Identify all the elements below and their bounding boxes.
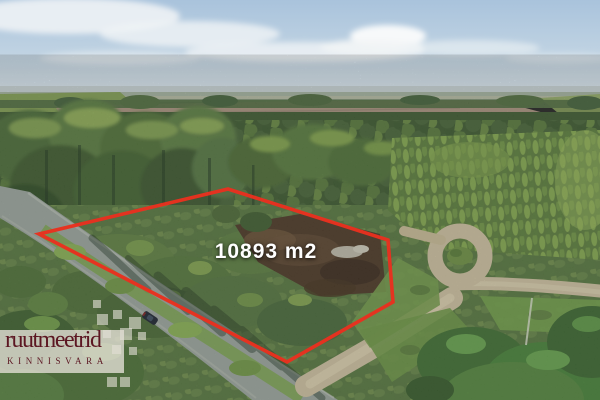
logo-pixel-icon xyxy=(129,347,137,355)
brand-name: ruutmeetrid xyxy=(5,330,100,354)
sky xyxy=(0,0,600,98)
logo-pixel-icon xyxy=(93,300,101,308)
logo-pixel-icon xyxy=(120,328,132,340)
logo-pixel-icon xyxy=(120,377,130,387)
logo-pixel-icon xyxy=(103,330,111,338)
aerial-property-photo: 10893 m2 ruutmeetrid KINNISVARA xyxy=(0,0,600,400)
brand-subtitle: KINNISVARA xyxy=(7,356,108,366)
logo-pixel-icon xyxy=(112,345,121,354)
area-label: 10893 m2 xyxy=(196,240,336,264)
logo-pixel-icon xyxy=(138,332,146,340)
logo-pixel-icon xyxy=(113,310,122,319)
logo-pixel-icon xyxy=(97,314,108,325)
logo-pixel-icon xyxy=(107,377,117,387)
